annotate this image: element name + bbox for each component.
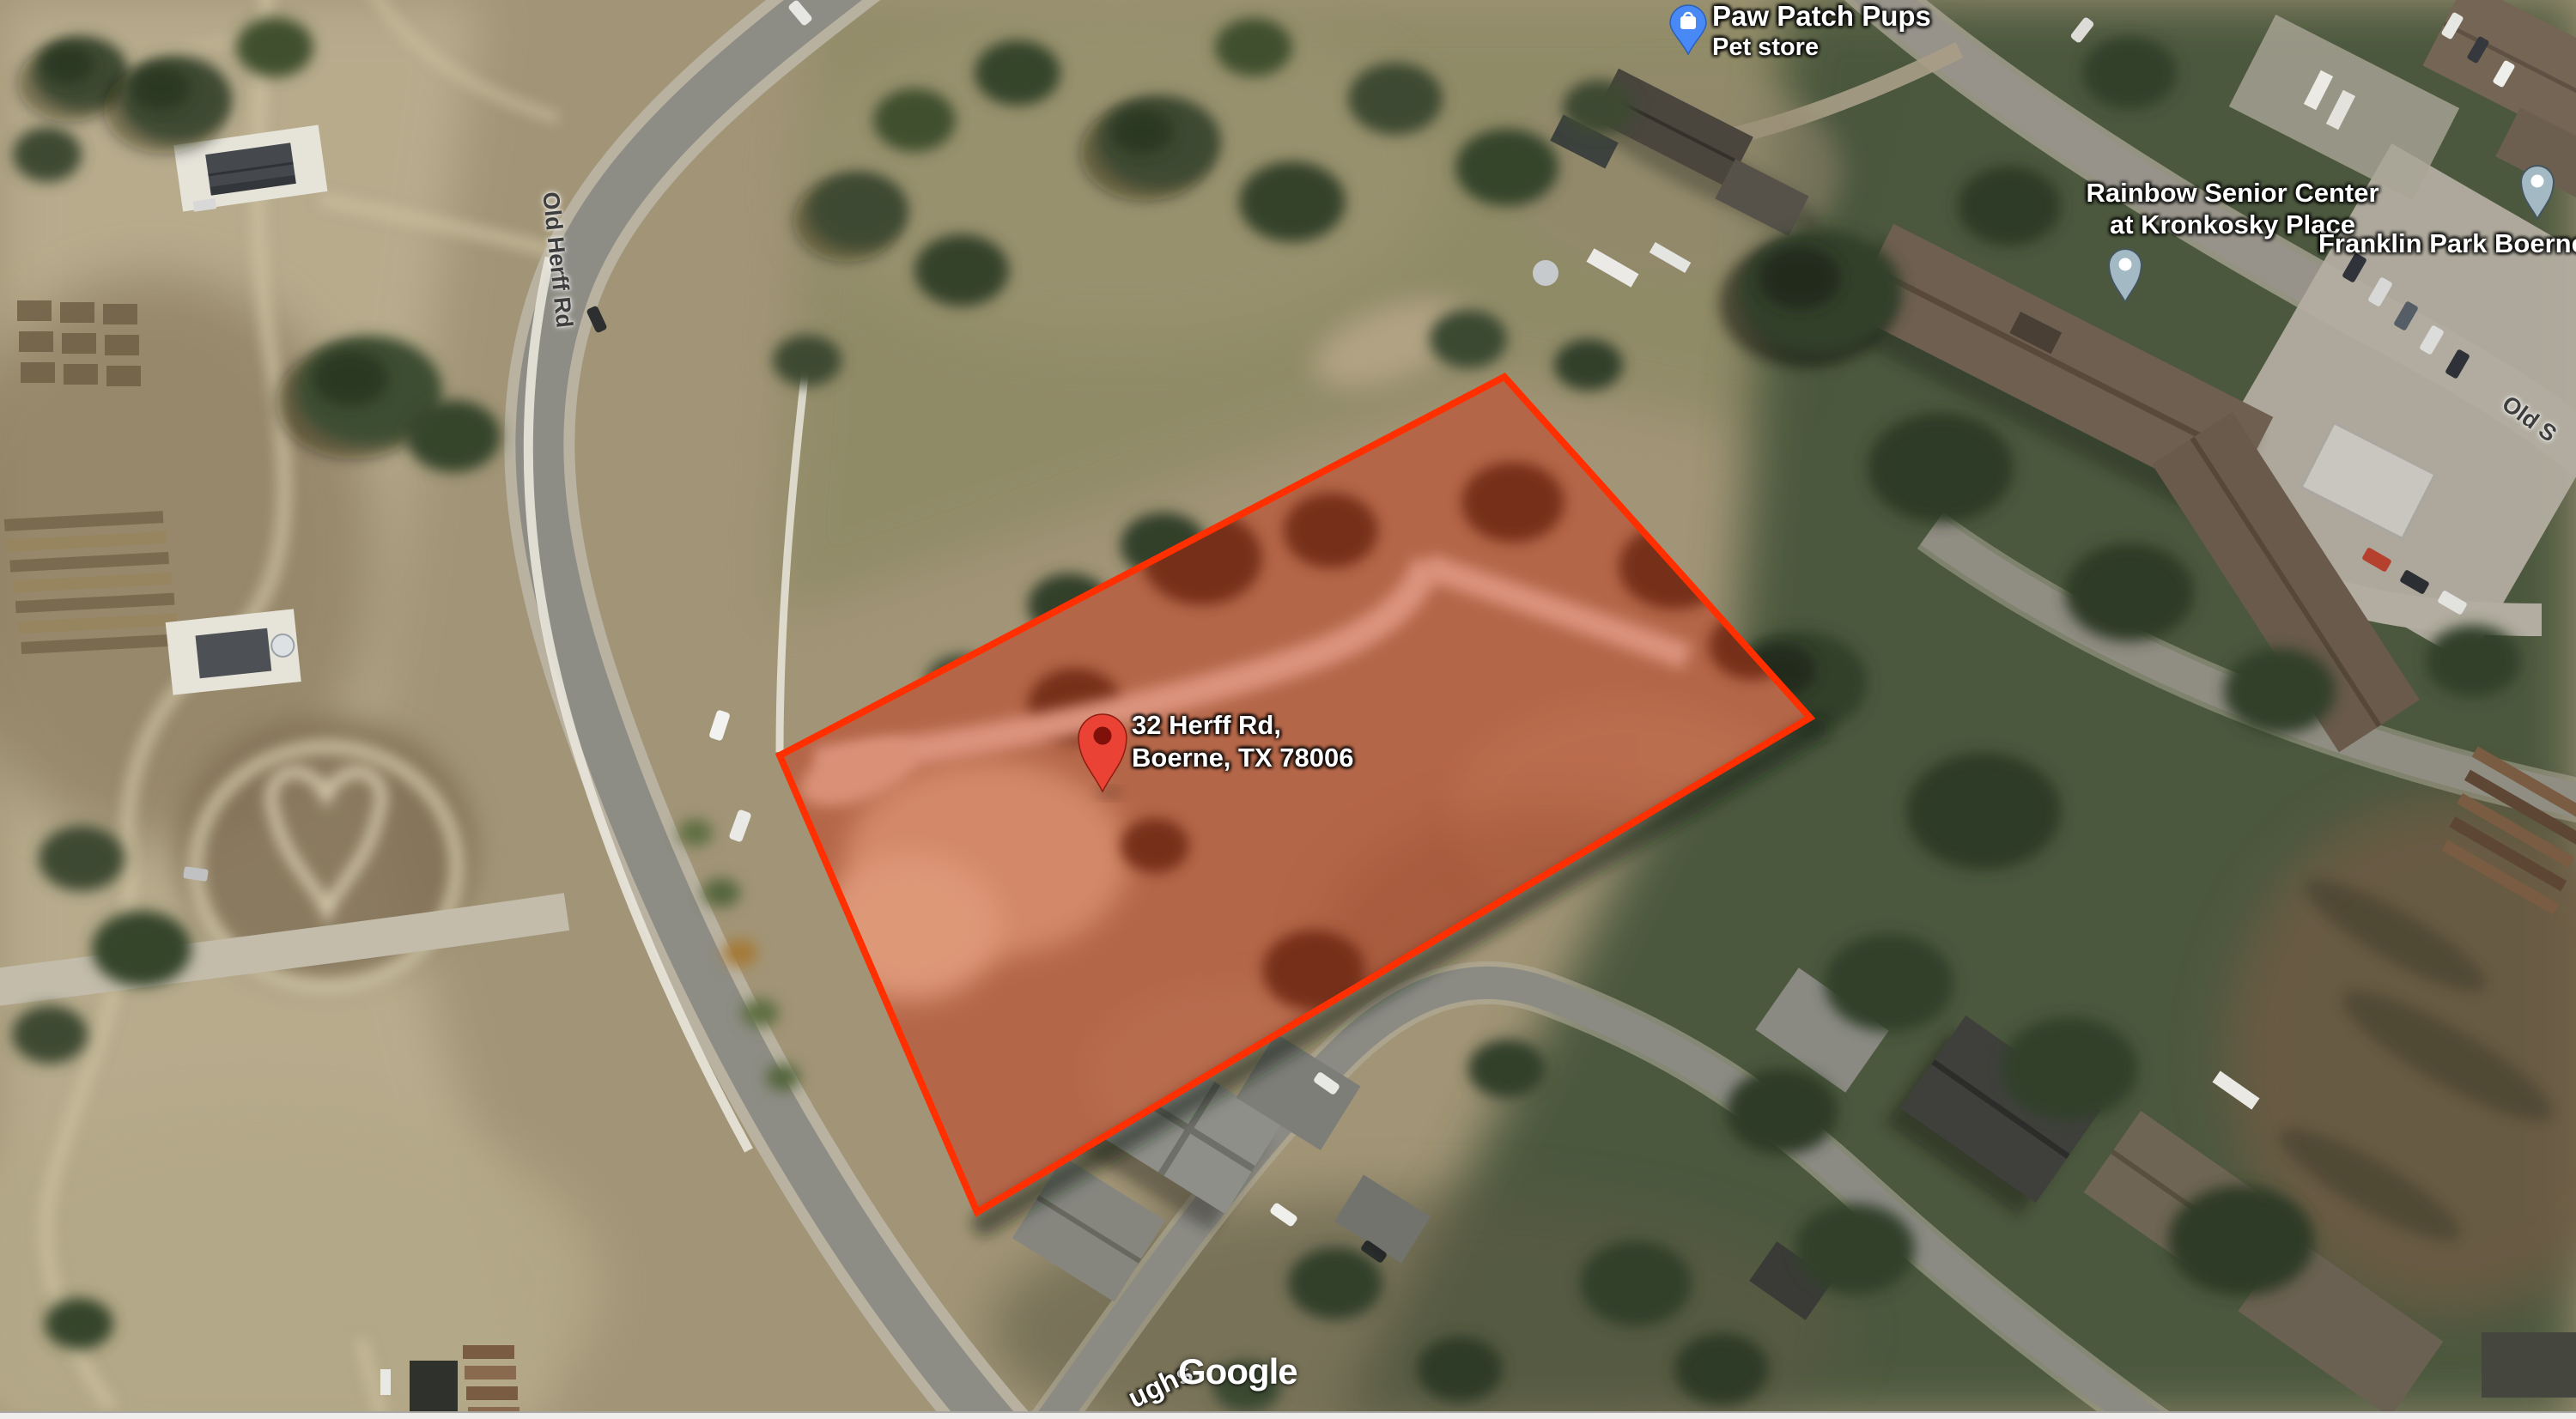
address-marker-label: 32 Herff Rd, Boerne, TX 78006 xyxy=(1132,709,1353,774)
road-label-old-san-antonio-rd: Old S xyxy=(2497,391,2561,448)
poi-title[interactable]: Paw Patch Pups xyxy=(1712,0,1931,33)
google-logo[interactable]: Google xyxy=(1178,1351,1297,1392)
address-line2: Boerne, TX 78006 xyxy=(1132,742,1353,774)
label-layer: Paw Patch Pups Pet store Rainbow Senior … xyxy=(0,0,2576,1419)
poi-category[interactable]: Pet store xyxy=(1712,33,1931,62)
poi-title-line1[interactable]: Rainbow Senior Center xyxy=(2057,177,2409,209)
road-label-old-herff-rd: Old Herff Rd xyxy=(537,191,577,329)
poi-label-franklin-park[interactable]: Franklin Park Boerne xyxy=(2318,227,2576,259)
address-line1: 32 Herff Rd, xyxy=(1132,709,1353,742)
poi-title[interactable]: Franklin Park Boerne xyxy=(2318,227,2576,259)
poi-label-paw-patch-pups[interactable]: Paw Patch Pups Pet store xyxy=(1712,0,1931,62)
satellite-map-canvas[interactable]: Paw Patch Pups Pet store Rainbow Senior … xyxy=(0,0,2576,1419)
bottom-ui-bar-edge xyxy=(0,1411,2576,1419)
